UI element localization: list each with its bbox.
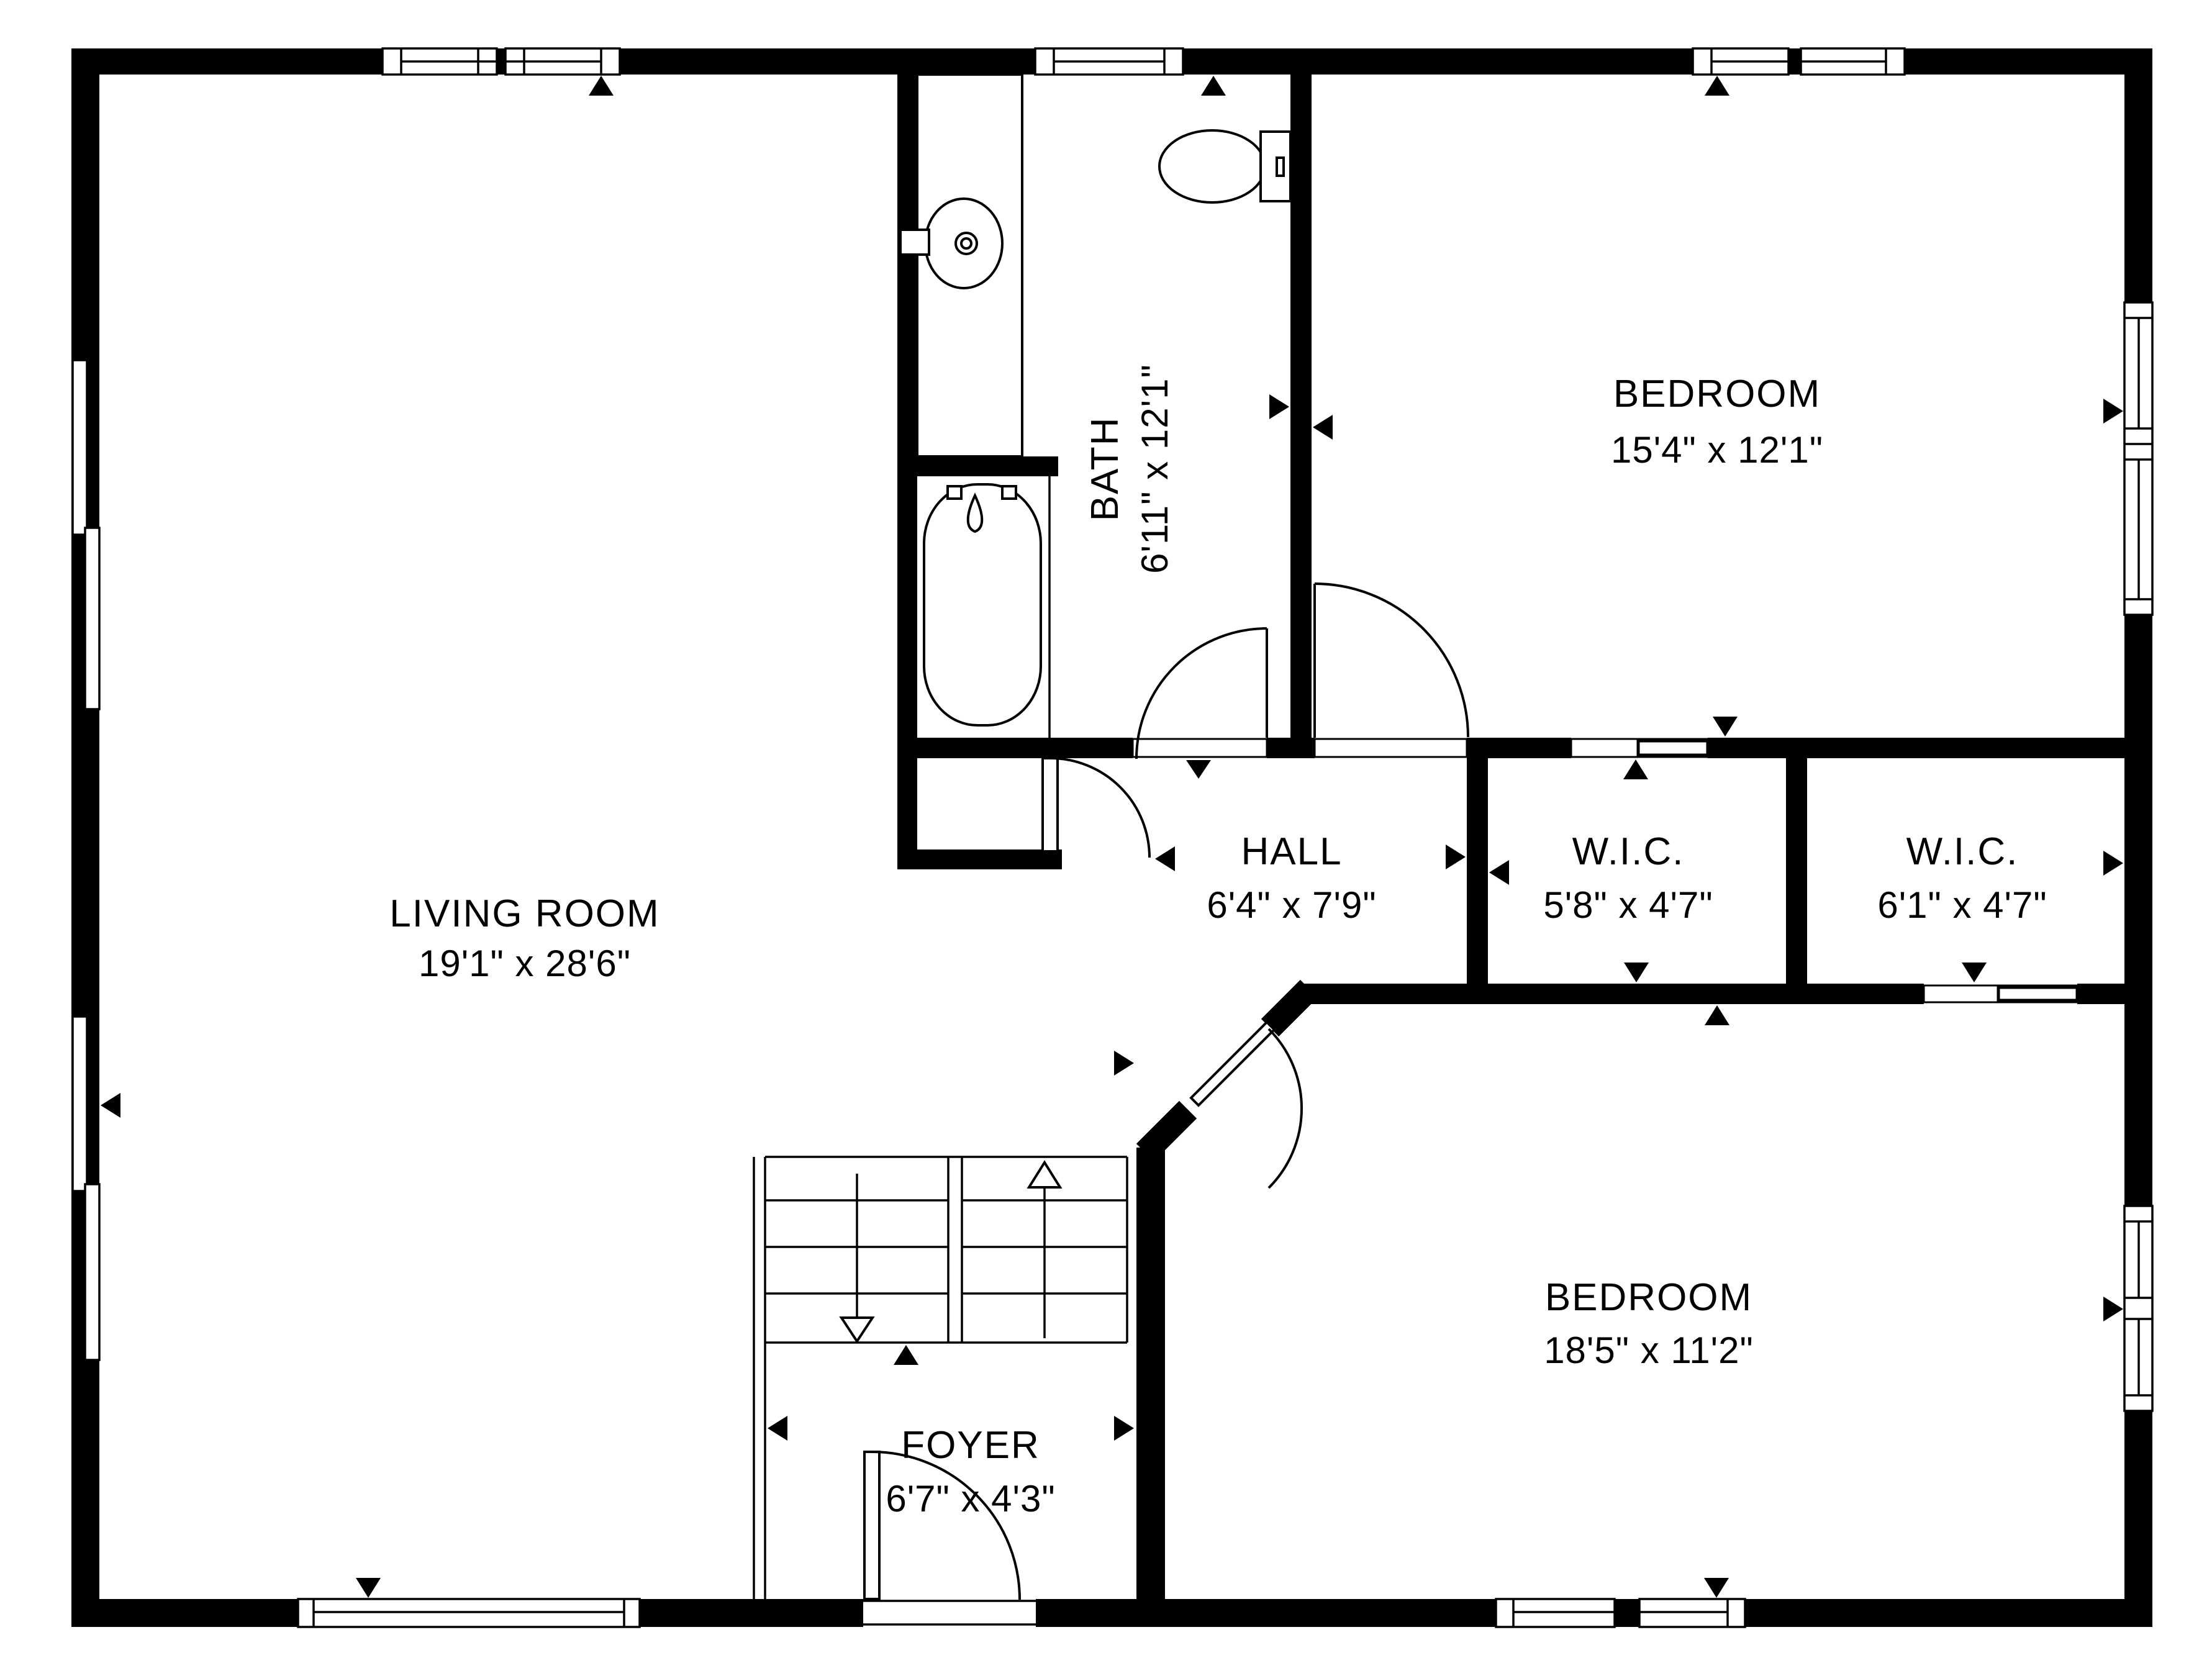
wall-wic-divider bbox=[1786, 758, 1807, 1004]
wall-hall-wic bbox=[1467, 758, 1488, 1004]
hall-label: HALL bbox=[1241, 830, 1342, 873]
window-sash bbox=[85, 528, 99, 709]
wall-tub-alcove bbox=[897, 456, 1058, 476]
wic-left-door bbox=[1571, 735, 1708, 761]
living-room-label: LIVING ROOM bbox=[389, 892, 660, 935]
door-opening bbox=[863, 1599, 1036, 1627]
toilet-flush-button bbox=[1277, 158, 1284, 176]
sliding-door-panel bbox=[1638, 741, 1708, 755]
bedroom-bottom-dims: 18'5" x 11'2" bbox=[1544, 1330, 1754, 1371]
foyer-dims: 6'7" x 4'3" bbox=[886, 1478, 1055, 1520]
wic-right-dims: 6'1" x 4'7" bbox=[1877, 884, 2047, 926]
wic-right-label: W.I.C. bbox=[1906, 830, 2019, 873]
sliding-door-panel bbox=[1998, 987, 2077, 1000]
window-bath bbox=[1035, 48, 1183, 75]
floor-plan-canvas: LIVING ROOM 19'1" x 28'6" BATH 6'11" x 1… bbox=[0, 0, 2212, 1658]
bathtub-icon bbox=[924, 476, 1049, 738]
wall-left bbox=[71, 48, 99, 1627]
sink-drain-inner bbox=[961, 238, 971, 248]
wall-bath-bedroom bbox=[1290, 75, 1312, 758]
wall-foyer-bedroom bbox=[1136, 1148, 1165, 1599]
door-threshold bbox=[1315, 739, 1467, 757]
bath-dims: 6'11" x 12'1" bbox=[1134, 364, 1176, 574]
window-right-lower bbox=[2124, 1206, 2152, 1411]
door-threshold bbox=[1133, 739, 1267, 757]
hall-dims: 6'4" x 7'9" bbox=[1207, 884, 1376, 926]
foyer-label: FOYER bbox=[901, 1424, 1040, 1467]
wall-bath-hall bbox=[897, 738, 2124, 758]
window-sash bbox=[73, 1017, 87, 1191]
window-sash bbox=[73, 360, 87, 535]
toilet-bowl bbox=[1159, 130, 1265, 202]
floor-plan: LIVING ROOM 19'1" x 28'6" BATH 6'11" x 1… bbox=[0, 0, 2212, 1658]
wic-right-door bbox=[1924, 981, 2077, 1007]
living-room-dims: 19'1" x 28'6" bbox=[419, 943, 631, 984]
bedroom-top-dims: 15'4" x 12'1" bbox=[1611, 429, 1823, 471]
sink-faucet-base bbox=[900, 230, 929, 255]
wic-left-label: W.I.C. bbox=[1572, 830, 1685, 873]
tub-fitting bbox=[1002, 486, 1016, 499]
wall-closet-bottom bbox=[897, 849, 1062, 869]
vanity-icon bbox=[900, 75, 1022, 456]
bedroom-bottom-label: BEDROOM bbox=[1545, 1276, 1752, 1319]
tub-fitting bbox=[948, 486, 961, 499]
toilet-icon bbox=[1159, 130, 1290, 202]
bedroom-top-label: BEDROOM bbox=[1613, 373, 1821, 415]
background bbox=[0, 0, 2212, 1658]
window-bottom-living bbox=[298, 1599, 640, 1627]
wic-left-dims: 5'8" x 4'7" bbox=[1543, 884, 1713, 926]
door-leaf bbox=[1043, 758, 1058, 851]
bath-label: BATH bbox=[1084, 417, 1126, 522]
door-leaf bbox=[864, 1452, 879, 1599]
window-sash bbox=[85, 1184, 99, 1360]
window-right-upper bbox=[2124, 302, 2152, 615]
